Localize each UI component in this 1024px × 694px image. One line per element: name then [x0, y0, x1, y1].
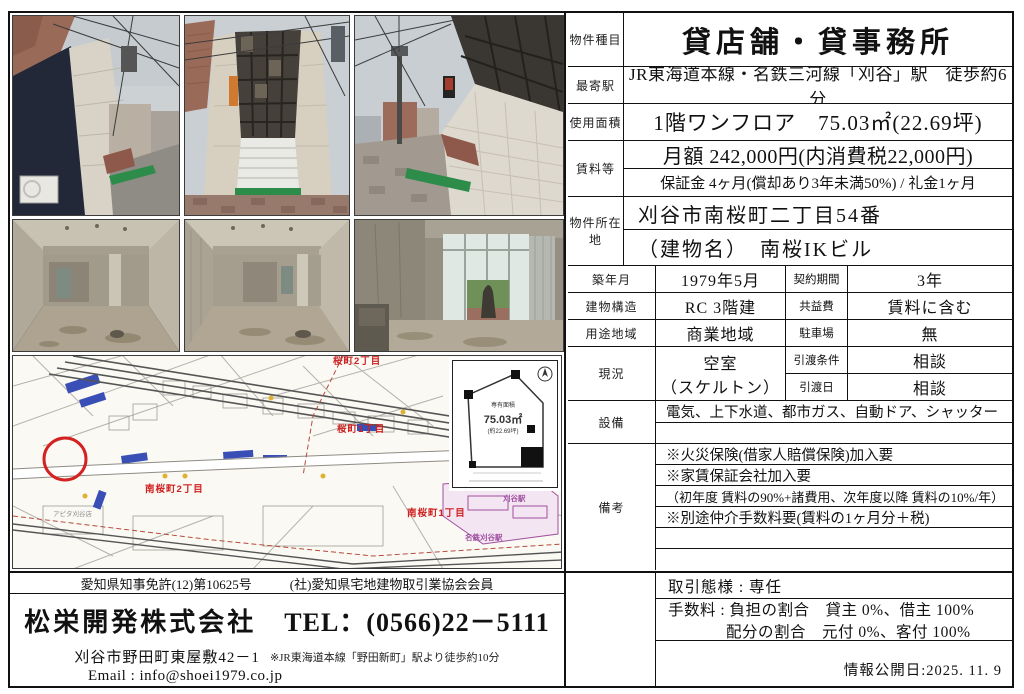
note-empty-row-2	[656, 549, 1012, 569]
handover-cond-value: 相談	[848, 347, 1012, 373]
company-name: 松栄開発株式会社	[24, 602, 256, 639]
location-address: 刈谷市南桜町二丁目54番	[624, 197, 1012, 230]
publication-date: 情報公開日:2025. 11. 9	[656, 641, 1012, 686]
note-guarantee-fee: （初年度 賃料の90%+諸費用、次年度以降 賃料の10%/年）	[656, 486, 1012, 507]
flyer-sheet: 桜町2丁目 桜町1丁目 南桜町2丁目 南桜町1丁目 刈谷駅 名鉄刈谷駅 アピタ刈…	[8, 11, 1014, 688]
equipment-value: 電気、上下水道、都市ガス、自動ドア、シャッター	[656, 401, 1012, 423]
row-property-type: 物件種目 貸店舗・貸事務所	[568, 13, 1012, 67]
location-map: 桜町2丁目 桜町1丁目 南桜町2丁目 南桜町1丁目 刈谷駅 名鉄刈谷駅 アピタ刈…	[12, 355, 562, 569]
notes-label: 備考	[568, 444, 656, 570]
floor-area-value: 1階ワンフロア 75.03㎡(22.69坪)	[624, 104, 1012, 140]
map-label-sakura2: 桜町2丁目	[333, 356, 381, 367]
status-value-line2: （スケルトン）	[661, 374, 780, 398]
parking-label: 駐車場	[786, 320, 848, 346]
contract-value: 3年	[848, 266, 1012, 292]
company-address-note: ※JR東海道本線「野田新町」駅より徒歩約10分	[270, 649, 500, 665]
exterior-photo-row	[12, 15, 562, 216]
license-number: 愛知県知事免許(12)第10625号	[81, 574, 252, 593]
map-label-station: 刈谷駅	[503, 493, 526, 503]
note-fire-insurance: ※火災保険(借家人賠償保険)加入要	[656, 444, 1012, 465]
floorplan-sqm: 75.03㎡	[484, 412, 523, 426]
handover-cond-label: 引渡条件	[786, 347, 848, 373]
map-label-store: アピタ刈谷店	[53, 509, 93, 518]
association-membership: (社)愛知県宅地建物取引業協会会員	[290, 574, 494, 593]
note-brokerage-fee: ※別途仲介手数料要(賃料の1ヶ月分＋税)	[656, 507, 1012, 528]
built-label: 築年月	[568, 266, 656, 292]
equipment-label: 設備	[568, 401, 656, 443]
row-structure-fee: 建物構造 RC 3階建 共益費 賃料に含む	[568, 293, 1012, 320]
photo-interior-1	[12, 219, 180, 352]
transaction-info: 取引態様 : 専任 手数料 : 負担の割合 貸主 0%、借主 100% 配分の割…	[566, 573, 1012, 686]
built-value: 1979年5月	[656, 266, 786, 292]
deal-type: 取引態様 : 専任	[656, 573, 1012, 599]
zoning-value: 商業地域	[656, 320, 786, 346]
photo-exterior-side-left	[12, 15, 180, 216]
row-location: 物件所在地 刈谷市南桜町二丁目54番 （建物名） 南桜IKビル	[568, 197, 1012, 266]
footer: 愛知県知事免許(12)第10625号 (社)愛知県宅地建物取引業協会会員 松栄開…	[10, 571, 1012, 686]
photo-exterior-side-right	[354, 15, 564, 216]
status-label: 現況	[568, 347, 656, 400]
parking-value: 無	[848, 320, 1012, 346]
structure-label: 建物構造	[568, 293, 656, 319]
row-floor-area: 使用面積 1階ワンフロア 75.03㎡(22.69坪)	[568, 104, 1012, 141]
row-zoning-parking: 用途地域 商業地域 駐車場 無	[568, 320, 1012, 347]
rent-label: 賃料等	[568, 141, 624, 196]
photo-interior-2	[184, 219, 350, 352]
property-type-label: 物件種目	[568, 13, 624, 66]
floorplan-area-label: 専有面積	[491, 401, 515, 409]
note-rent-guarantee: ※家賃保証会社加入要	[656, 465, 1012, 486]
note-empty-row-1	[656, 528, 1012, 549]
floorplan-tsubo: (約22.69坪)	[487, 427, 518, 435]
service-fee-value: 賃料に含む	[848, 293, 1012, 319]
property-flyer: 桜町2丁目 桜町1丁目 南桜町2丁目 南桜町1丁目 刈谷駅 名鉄刈谷駅 アピタ刈…	[0, 0, 1024, 694]
interior-photo-row	[12, 219, 562, 352]
handover-date-value: 相談	[848, 374, 1012, 400]
map-label-sakura1: 桜町1丁目	[337, 423, 385, 435]
floor-plan: 専有面積 75.03㎡ (約22.69坪)	[452, 360, 558, 488]
map-label-station2: 名鉄刈谷駅	[465, 532, 503, 542]
photo-interior-entrance	[354, 219, 564, 352]
location-label: 物件所在地	[568, 197, 624, 265]
location-building-name: （建物名） 南桜IKビル	[624, 230, 1012, 265]
transaction-label-column	[566, 573, 656, 686]
photo-exterior-front	[184, 15, 350, 216]
agency-info: 愛知県知事免許(12)第10625号 (社)愛知県宅地建物取引業協会会員 松栄開…	[10, 573, 566, 686]
station-label: 最寄駅	[568, 67, 624, 103]
map-label-minamisakura1: 南桜町1丁目	[407, 507, 466, 519]
property-type-value: 貸店舗・貸事務所	[624, 13, 1012, 66]
contract-label: 契約期間	[786, 266, 848, 292]
zoning-label: 用途地域	[568, 320, 656, 346]
floor-area-label: 使用面積	[568, 104, 624, 140]
row-notes: 備考 ※火災保険(借家人賠償保険)加入要 ※家賃保証会社加入要 （初年度 賃料の…	[568, 444, 1012, 570]
structure-value: RC 3階建	[656, 293, 786, 319]
handover-date-label: 引渡日	[786, 374, 848, 400]
property-detail-table: 物件種目 貸店舗・貸事務所 最寄駅 JR東海道本線・名鉄三河線「刈谷」駅 徒歩約…	[568, 13, 1012, 571]
map-label-minamisakura2: 南桜町2丁目	[145, 483, 204, 495]
row-built-contract: 築年月 1979年5月 契約期間 3年	[568, 266, 1012, 293]
row-station: 最寄駅 JR東海道本線・名鉄三河線「刈谷」駅 徒歩約6分	[568, 67, 1012, 104]
rent-monthly: 月額 242,000円(内消費税22,000円)	[624, 141, 1012, 169]
rent-deposit: 保証金 4ヶ月(償却あり3年未満50%) / 礼金1ヶ月	[624, 169, 1012, 196]
company-phone: TEL：(0566)22－5111	[284, 602, 549, 639]
company-email: Email : info@shoei1979.co.jp	[10, 667, 564, 686]
status-value-line1: 空室	[703, 350, 737, 374]
photo-map-block: 桜町2丁目 桜町1丁目 南桜町2丁目 南桜町1丁目 刈谷駅 名鉄刈谷駅 アピタ刈…	[10, 13, 566, 571]
row-rent: 賃料等 月額 242,000円(内消費税22,000円) 保証金 4ヶ月(償却あ…	[568, 141, 1012, 197]
row-status-handover: 現況 空室 （スケルトン） 引渡条件 相談 引渡日 相談	[568, 347, 1012, 401]
station-value: JR東海道本線・名鉄三河線「刈谷」駅 徒歩約6分	[624, 67, 1012, 103]
commission-split: 配分の割合 元付 0%、客付 100%	[668, 620, 1012, 642]
row-equipment: 設備 電気、上下水道、都市ガス、自動ドア、シャッター	[568, 401, 1012, 444]
equipment-empty-row	[656, 423, 1012, 443]
company-address: 刈谷市野田町東屋敷42－1	[74, 646, 260, 667]
service-fee-label: 共益費	[786, 293, 848, 319]
commission-burden: 手数料 : 負担の割合 貸主 0%、借主 100%	[668, 598, 1012, 620]
